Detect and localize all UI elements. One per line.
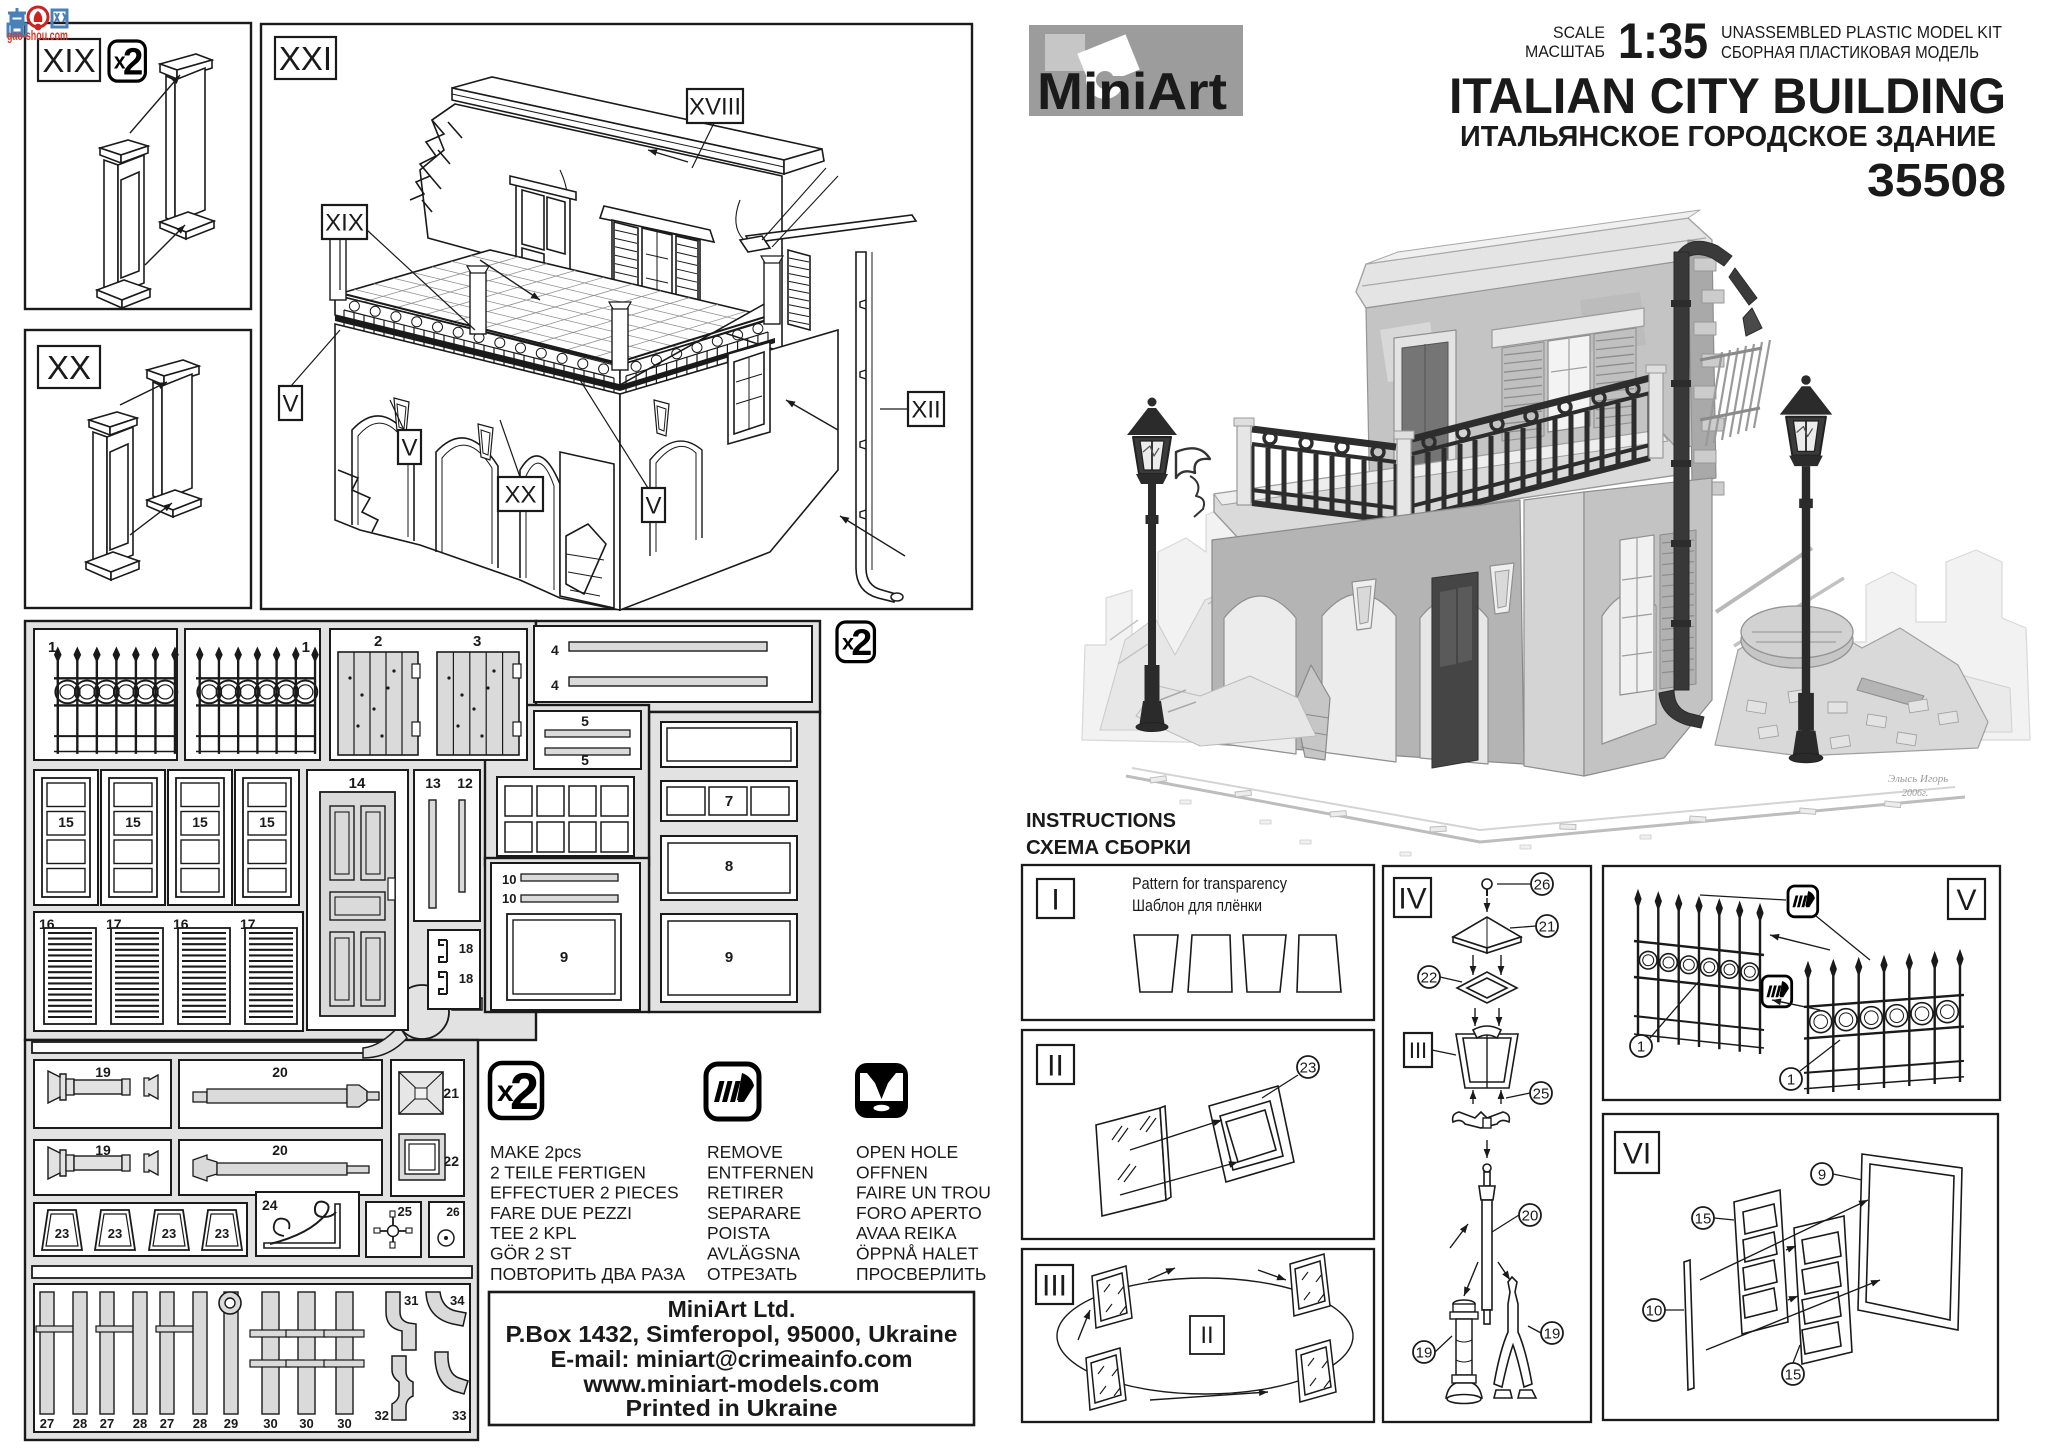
svg-text:25: 25 (398, 1204, 412, 1219)
svg-text:V: V (1956, 884, 1976, 917)
svg-text:E-mail: miniart@crimeainfo.com: E-mail: miniart@crimeainfo.com (551, 1346, 913, 1372)
svg-text:13: 13 (425, 775, 441, 791)
svg-text:19: 19 (1416, 1344, 1433, 1361)
svg-text:20: 20 (1522, 1207, 1539, 1224)
svg-text:Шаблон для плёнки: Шаблон для плёнки (1132, 896, 1262, 915)
svg-text:15: 15 (125, 814, 141, 830)
svg-text:24: 24 (262, 1197, 278, 1213)
svg-text:gao-shou.com: gao-shou.com (7, 28, 68, 43)
svg-text:30: 30 (337, 1416, 351, 1431)
svg-text:30: 30 (263, 1416, 277, 1431)
svg-text:15: 15 (259, 814, 275, 830)
svg-text:23: 23 (55, 1226, 69, 1241)
svg-text:MAKE 2pcs: MAKE 2pcs (490, 1142, 582, 1162)
svg-text:20: 20 (272, 1064, 288, 1080)
svg-text:33: 33 (452, 1408, 466, 1423)
svg-text:RETIRER: RETIRER (707, 1183, 784, 1203)
svg-text:XX: XX (504, 482, 536, 509)
svg-text:www.miniart-models.com: www.miniart-models.com (582, 1371, 879, 1397)
svg-text:XIX: XIX (42, 42, 95, 79)
svg-text:10: 10 (1646, 1302, 1663, 1319)
svg-text:35508: 35508 (1867, 154, 2006, 206)
svg-text:СБОРНАЯ ПЛАСТИКОВАЯ МОДЕЛЬ: СБОРНАЯ ПЛАСТИКОВАЯ МОДЕЛЬ (1721, 42, 1979, 62)
svg-text:30: 30 (299, 1416, 313, 1431)
svg-text:10: 10 (502, 891, 516, 906)
svg-text:EFFECTUER 2 PIECES: EFFECTUER 2 PIECES (490, 1183, 679, 1203)
svg-text:SCALE: SCALE (1553, 23, 1605, 42)
svg-text:19: 19 (1544, 1325, 1561, 1342)
svg-text:FARE DUE PEZZI: FARE DUE PEZZI (490, 1203, 632, 1223)
svg-text:12: 12 (457, 775, 473, 791)
svg-text:28: 28 (73, 1416, 87, 1431)
svg-text:15: 15 (192, 814, 208, 830)
svg-text:5: 5 (581, 713, 589, 729)
svg-text:ENTFERNEN: ENTFERNEN (707, 1162, 814, 1182)
svg-text:Pattern for transparency: Pattern for transparency (1132, 874, 1287, 893)
svg-text:INSTRUCTIONS: INSTRUCTIONS (1026, 810, 1176, 832)
svg-text:21: 21 (1539, 918, 1556, 935)
svg-text:XXI: XXI (279, 40, 332, 77)
svg-text:OPEN HOLE: OPEN HOLE (856, 1142, 958, 1162)
svg-text:V: V (401, 435, 417, 462)
svg-text:V: V (282, 391, 298, 418)
svg-text:ПОВТОРИТЬ ДВА РАЗА: ПОВТОРИТЬ ДВА РАЗА (490, 1264, 686, 1284)
svg-text:9: 9 (725, 949, 733, 966)
svg-text:MiniArt Ltd.: MiniArt Ltd. (668, 1296, 796, 1322)
svg-text:VI: VI (1623, 1137, 1651, 1170)
svg-text:27: 27 (100, 1416, 114, 1431)
svg-text:22: 22 (1421, 969, 1438, 986)
svg-text:IV: IV (1398, 882, 1426, 915)
svg-text:23: 23 (162, 1226, 176, 1241)
svg-text:31: 31 (404, 1293, 418, 1308)
svg-text:1:35: 1:35 (1618, 13, 1708, 69)
svg-text:XII: XII (911, 397, 940, 424)
svg-text:XIX: XIX (325, 210, 364, 237)
svg-text:FAIRE UN TROU: FAIRE UN TROU (856, 1183, 991, 1203)
svg-text:ÖPPNÅ HALET: ÖPPNÅ HALET (856, 1244, 979, 1264)
svg-text:1: 1 (1637, 1038, 1645, 1055)
svg-text:III: III (1042, 1269, 1067, 1302)
svg-text:REMOVE: REMOVE (707, 1142, 783, 1162)
svg-text:ПРОСВЕРЛИТЬ: ПРОСВЕРЛИТЬ (856, 1264, 986, 1284)
svg-text:ITALIAN CITY BUILDING: ITALIAN CITY BUILDING (1449, 68, 2006, 124)
svg-text:1: 1 (302, 639, 310, 656)
svg-text:XX: XX (47, 349, 91, 386)
svg-text:UNASSEMBLED PLASTIC MODEL K: UNASSEMBLED PLASTIC MODEL KIT (1721, 22, 2002, 42)
svg-text:28: 28 (193, 1416, 207, 1431)
svg-text:23: 23 (215, 1226, 229, 1241)
svg-text:34: 34 (450, 1293, 465, 1308)
svg-text:9: 9 (1818, 1166, 1826, 1183)
svg-text:II: II (1200, 1322, 1213, 1349)
svg-text:POISTA: POISTA (707, 1223, 770, 1243)
svg-text:20: 20 (272, 1142, 288, 1158)
svg-text:8: 8 (725, 858, 733, 875)
svg-text:26: 26 (446, 1205, 460, 1219)
svg-text:2006г.: 2006г. (1902, 788, 1928, 799)
svg-text:27: 27 (40, 1416, 54, 1431)
svg-text:18: 18 (459, 971, 473, 986)
svg-text:AVLÄGSNA: AVLÄGSNA (707, 1244, 800, 1264)
svg-text:SEPARARE: SEPARARE (707, 1203, 801, 1223)
svg-text:32: 32 (375, 1408, 389, 1423)
svg-text:19: 19 (95, 1064, 111, 1080)
svg-text:23: 23 (1300, 1059, 1317, 1076)
svg-text:OFFNEN: OFFNEN (856, 1162, 928, 1182)
svg-text:MiniArt: MiniArt (1037, 63, 1227, 121)
svg-text:III: III (1409, 1038, 1427, 1063)
svg-text:TEE 2 KPL: TEE 2 KPL (490, 1223, 577, 1243)
svg-text:ОТРЕЗАТЬ: ОТРЕЗАТЬ (707, 1264, 797, 1284)
svg-text:18: 18 (459, 941, 473, 956)
svg-text:XVIII: XVIII (689, 94, 741, 121)
svg-text:15: 15 (58, 814, 74, 830)
svg-text:21: 21 (443, 1085, 459, 1101)
svg-text:4: 4 (551, 642, 559, 658)
svg-text:2: 2 (374, 633, 382, 650)
svg-text:СХЕМА СБОРКИ: СХЕМА СБОРКИ (1026, 837, 1191, 859)
svg-text:2 TEILE FERTIGEN: 2 TEILE FERTIGEN (490, 1162, 646, 1182)
svg-text:28: 28 (133, 1416, 147, 1431)
svg-text:4: 4 (551, 677, 559, 693)
svg-text:ИТАЛЬЯНСКОЕ ГОРОДСКОЕ ЗДАНИЕ: ИТАЛЬЯНСКОЕ ГОРОДСКОЕ ЗДАНИЕ (1460, 121, 1996, 153)
svg-text:GÖR 2 ST: GÖR 2 ST (490, 1244, 572, 1264)
svg-text:7: 7 (725, 793, 733, 810)
svg-text:15: 15 (1695, 1210, 1712, 1227)
svg-text:I: I (1051, 883, 1059, 916)
svg-text:9: 9 (560, 949, 568, 966)
svg-text:1: 1 (1787, 1071, 1795, 1088)
svg-text:10: 10 (502, 872, 516, 887)
svg-text:27: 27 (160, 1416, 174, 1431)
svg-text:Printed in Ukraine: Printed in Ukraine (626, 1395, 838, 1421)
svg-text:V: V (645, 493, 661, 520)
svg-text:23: 23 (108, 1226, 122, 1241)
svg-text:Элысь Игорь: Элысь Игорь (1888, 773, 1948, 785)
svg-text:25: 25 (1533, 1085, 1550, 1102)
svg-text:22: 22 (443, 1153, 459, 1169)
svg-text:29: 29 (224, 1416, 238, 1431)
svg-text:AVAA REIKA: AVAA REIKA (856, 1223, 957, 1243)
svg-text:FORO APERTO: FORO APERTO (856, 1203, 982, 1223)
svg-text:МАСШТАБ: МАСШТАБ (1525, 42, 1605, 61)
svg-text:II: II (1047, 1049, 1064, 1082)
svg-text:3: 3 (473, 633, 481, 650)
svg-text:P.Box 1432, Simferopol, 95000,: P.Box 1432, Simferopol, 95000, Ukraine (506, 1321, 958, 1347)
svg-text:26: 26 (1534, 876, 1551, 893)
svg-text:14: 14 (349, 775, 366, 792)
svg-text:15: 15 (1785, 1366, 1802, 1383)
